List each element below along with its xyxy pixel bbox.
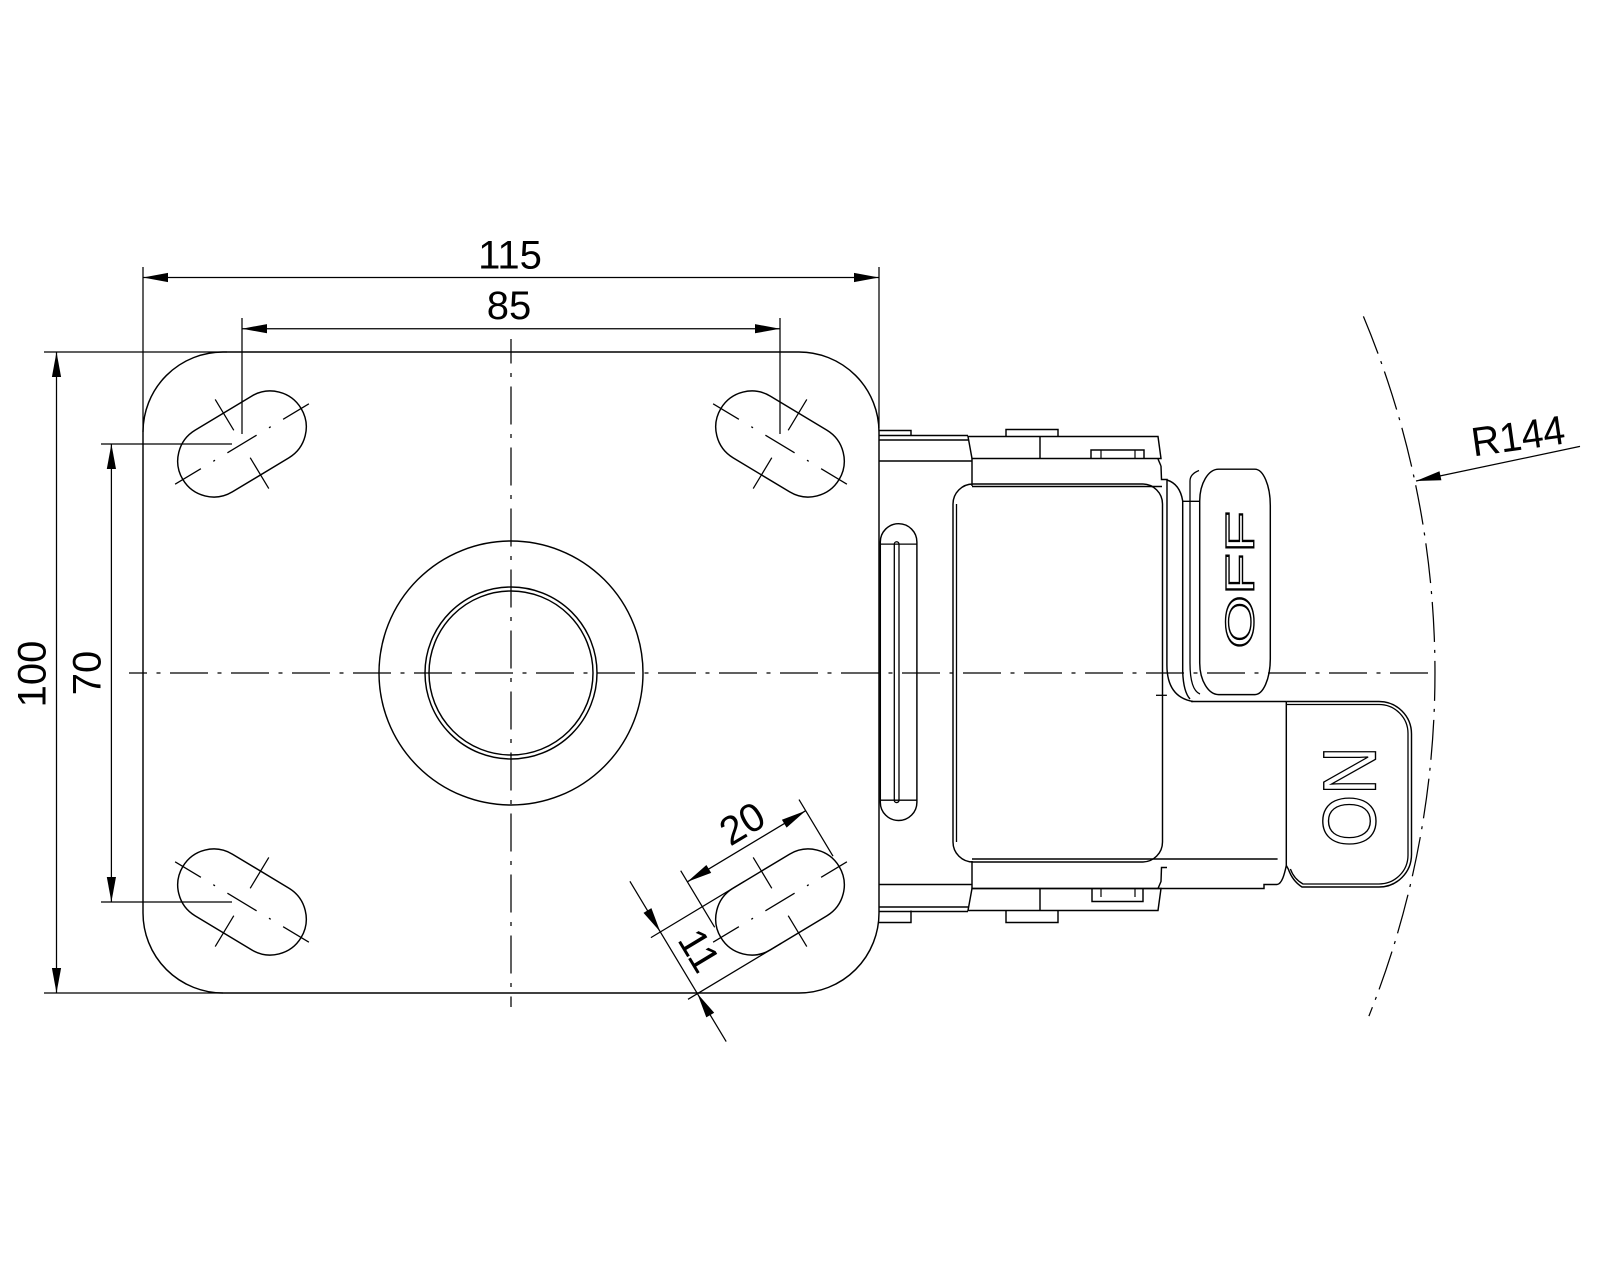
svg-text:100: 100: [11, 641, 55, 708]
svg-text:OFF: OFF: [1219, 511, 1263, 649]
svg-text:ON: ON: [1308, 746, 1392, 847]
svg-text:115: 115: [478, 234, 542, 278]
svg-text:85: 85: [487, 284, 532, 328]
svg-text:70: 70: [66, 651, 110, 696]
